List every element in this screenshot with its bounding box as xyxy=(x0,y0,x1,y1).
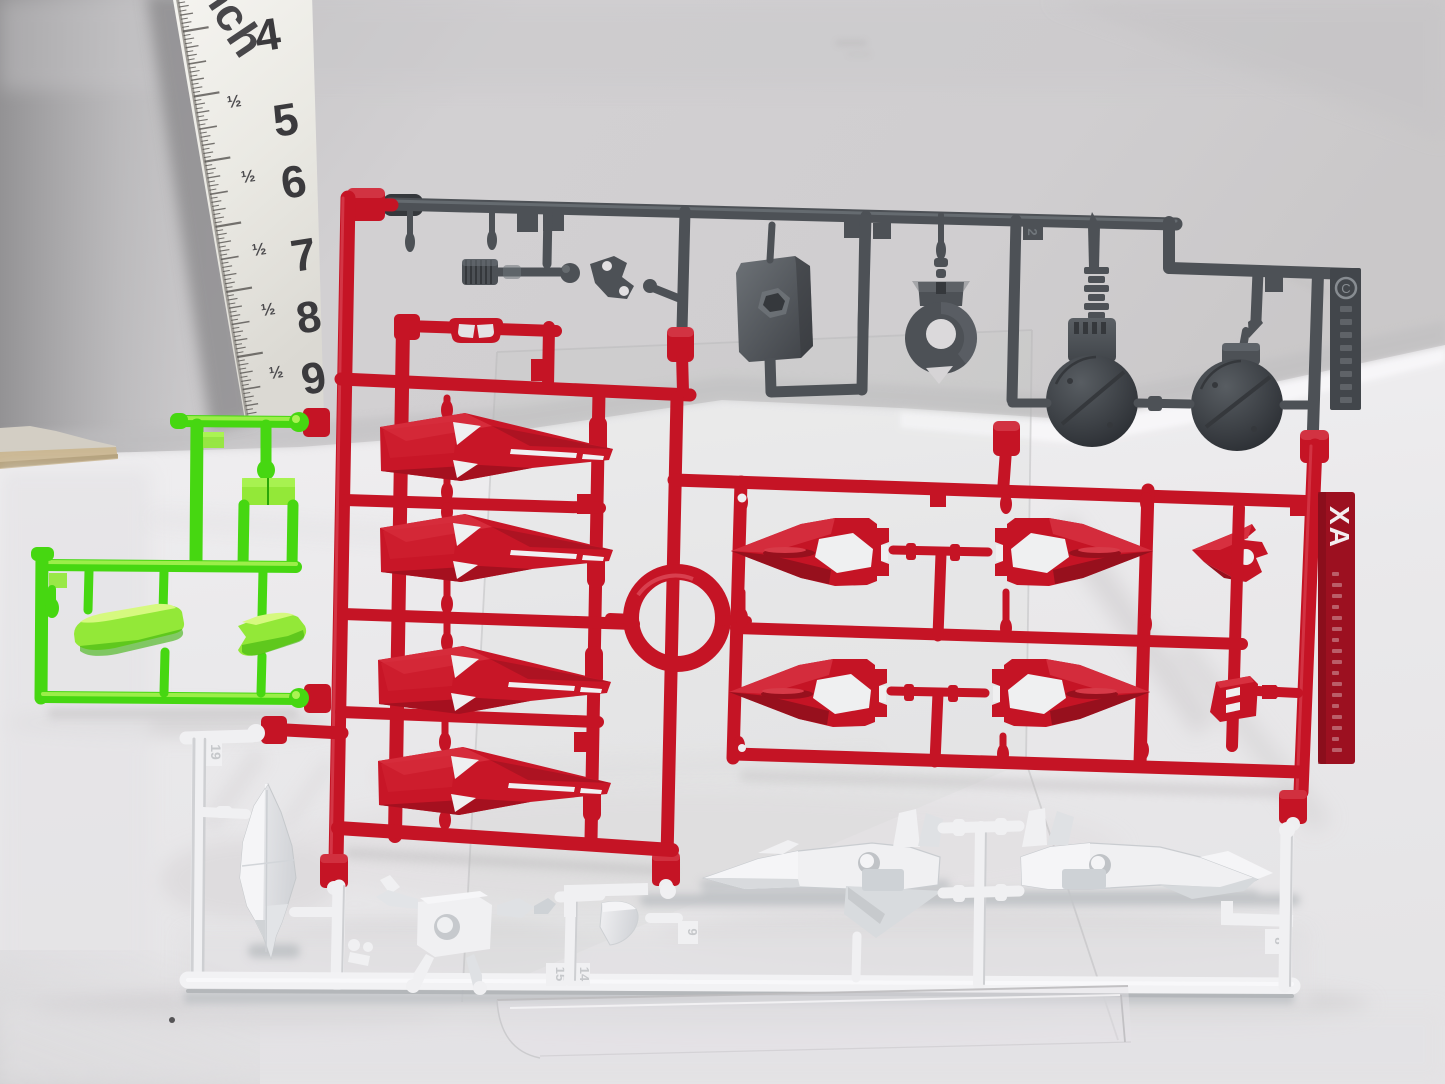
svg-text:14: 14 xyxy=(577,967,592,982)
svg-text:19: 19 xyxy=(208,744,224,760)
svg-text:½: ½ xyxy=(240,166,257,187)
svg-text:½: ½ xyxy=(268,362,285,383)
svg-text:2: 2 xyxy=(1025,228,1040,235)
svg-text:½: ½ xyxy=(260,299,277,320)
svg-text:½: ½ xyxy=(251,239,268,260)
svg-text:9: 9 xyxy=(685,928,700,935)
svg-text:XA: XA xyxy=(1324,506,1355,549)
svg-text:½: ½ xyxy=(226,91,243,112)
svg-text:C: C xyxy=(1341,281,1350,296)
